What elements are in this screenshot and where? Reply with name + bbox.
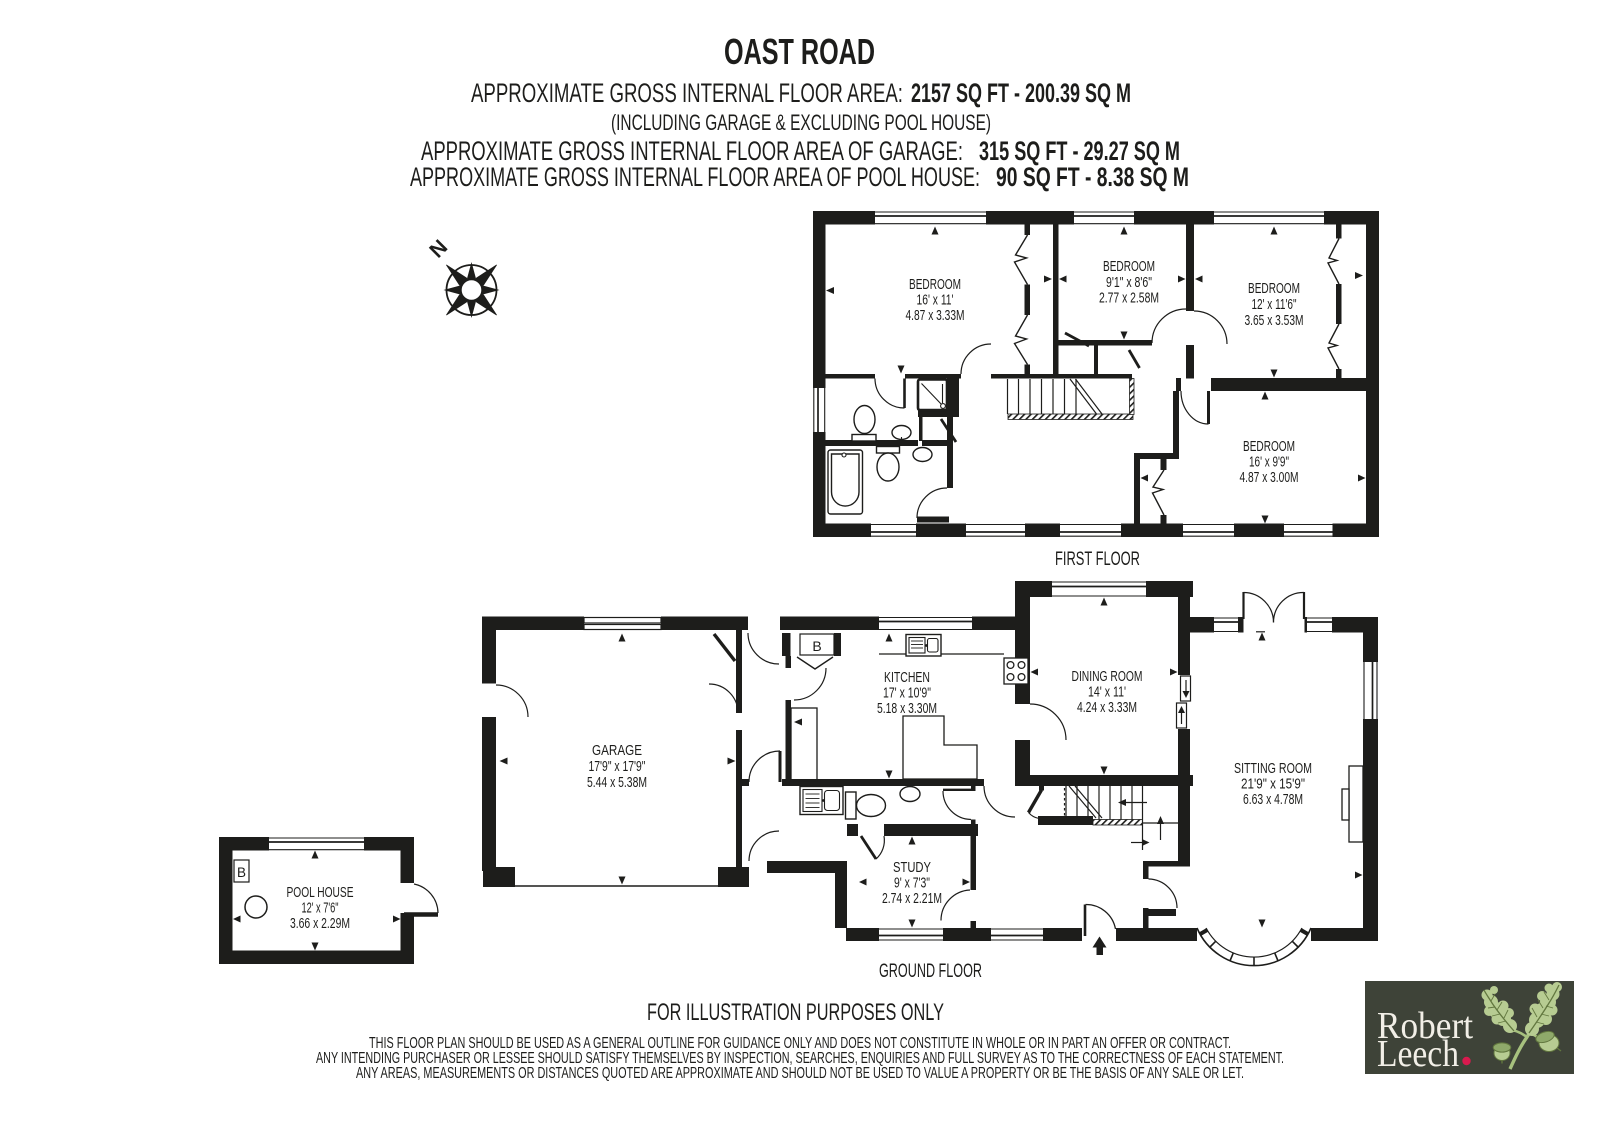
svg-text:90 SQ FT - 8.38 SQ M: 90 SQ FT - 8.38 SQ M [996, 162, 1189, 192]
svg-text:2.74 x 2.21M: 2.74 x 2.21M [882, 891, 942, 907]
svg-text:21'9" x 15'9": 21'9" x 15'9" [1241, 777, 1305, 793]
svg-text:FIRST FLOOR: FIRST FLOOR [1055, 548, 1140, 570]
svg-text:APPROXIMATE GROSS INTERNAL FLO: APPROXIMATE GROSS INTERNAL FLOOR AREA OF… [410, 162, 980, 192]
svg-text:17'9" x 17'9": 17'9" x 17'9" [589, 759, 646, 775]
svg-text:DINING ROOM: DINING ROOM [1072, 669, 1143, 685]
svg-text:12' x 11'6": 12' x 11'6" [1252, 297, 1297, 313]
svg-text:BEDROOM: BEDROOM [909, 277, 961, 293]
svg-text:12' x 7'6": 12' x 7'6" [302, 901, 339, 917]
svg-text:GROUND FLOOR: GROUND FLOOR [879, 960, 982, 982]
svg-text:FOR ILLUSTRATION PURPOSES ONLY: FOR ILLUSTRATION PURPOSES ONLY [647, 999, 944, 1026]
svg-text:Leech: Leech [1377, 1033, 1459, 1075]
svg-text:5.18 x 3.30M: 5.18 x 3.30M [877, 701, 937, 717]
svg-text:(INCLUDING GARAGE & EXCLUDING: (INCLUDING GARAGE & EXCLUDING POOL HOUSE… [611, 110, 991, 135]
svg-text:SITTING ROOM: SITTING ROOM [1234, 761, 1312, 777]
svg-text:ANY AREAS, MEASUREMENTS OR DIS: ANY AREAS, MEASUREMENTS OR DISTANCES QUO… [356, 1065, 1244, 1082]
svg-text:2157 SQ FT - 200.39 SQ M: 2157 SQ FT - 200.39 SQ M [911, 78, 1131, 108]
svg-text:4.87 x 3.00M: 4.87 x 3.00M [1240, 470, 1299, 486]
svg-text:BEDROOM: BEDROOM [1103, 259, 1155, 275]
svg-text:2.77 x 2.58M: 2.77 x 2.58M [1099, 291, 1159, 307]
svg-text:3.66 x 2.29M: 3.66 x 2.29M [290, 916, 350, 932]
svg-text:OAST ROAD: OAST ROAD [724, 31, 875, 72]
svg-text:16' x 9'9": 16' x 9'9" [1249, 455, 1289, 471]
svg-text:17' x 10'9": 17' x 10'9" [883, 686, 931, 702]
svg-text:16' x 11': 16' x 11' [917, 293, 954, 309]
svg-text:4.87 x 3.33M: 4.87 x 3.33M [906, 308, 965, 324]
svg-text:6.63 x 4.78M: 6.63 x 4.78M [1243, 792, 1303, 808]
svg-text:B: B [237, 865, 246, 880]
svg-text:9' x 7'3": 9' x 7'3" [894, 876, 930, 892]
svg-text:5.44 x 5.38M: 5.44 x 5.38M [587, 775, 647, 791]
svg-text:3.65 x 3.53M: 3.65 x 3.53M [1245, 313, 1304, 329]
svg-text:B: B [812, 638, 821, 654]
svg-text:STUDY: STUDY [893, 860, 931, 876]
svg-text:APPROXIMATE GROSS INTERNAL FLO: APPROXIMATE GROSS INTERNAL FLOOR AREA: [471, 78, 903, 108]
svg-text:POOL HOUSE: POOL HOUSE [287, 885, 354, 901]
svg-text:BEDROOM: BEDROOM [1243, 439, 1295, 455]
svg-text:BEDROOM: BEDROOM [1248, 281, 1300, 297]
svg-text:14' x 11': 14' x 11' [1088, 685, 1126, 701]
svg-text:4.24 x 3.33M: 4.24 x 3.33M [1077, 700, 1137, 716]
svg-text:GARAGE: GARAGE [592, 743, 642, 759]
svg-text:9'1" x 8'6": 9'1" x 8'6" [1106, 275, 1152, 291]
svg-text:KITCHEN: KITCHEN [884, 670, 930, 686]
